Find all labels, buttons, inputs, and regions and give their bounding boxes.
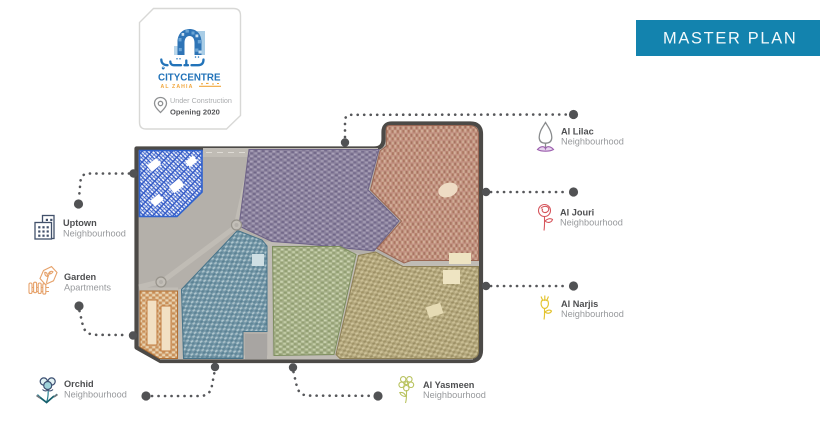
svg-text:Neighbourhood: Neighbourhood	[560, 218, 623, 228]
svg-text:Neighbourhood: Neighbourhood	[63, 229, 126, 239]
svg-text:Uptown: Uptown	[63, 218, 97, 228]
svg-text:Apartments: Apartments	[64, 283, 111, 293]
svg-text:Under Construction: Under Construction	[170, 96, 232, 105]
svg-text:MASTER PLAN: MASTER PLAN	[663, 30, 797, 48]
svg-text:Neighbourhood: Neighbourhood	[561, 137, 624, 147]
svg-text:Neighbourhood: Neighbourhood	[64, 390, 127, 400]
svg-text:CITYCENTRE: CITYCENTRE	[158, 73, 221, 84]
svg-text:Opening 2020: Opening 2020	[170, 108, 220, 117]
svg-text:Neighbourhood: Neighbourhood	[561, 309, 624, 319]
svg-text:Orchid: Orchid	[64, 379, 94, 389]
svg-text:Al Narjis: Al Narjis	[561, 299, 598, 309]
svg-text:Al Lilac: Al Lilac	[561, 127, 594, 137]
svg-text:Garden: Garden	[64, 272, 97, 282]
svg-text:AL ZAHIA: AL ZAHIA	[161, 84, 194, 90]
svg-text:Al Jouri: Al Jouri	[560, 208, 594, 218]
svg-text:Neighbourhood: Neighbourhood	[423, 390, 486, 400]
svg-text:Al Yasmeen: Al Yasmeen	[423, 380, 475, 390]
